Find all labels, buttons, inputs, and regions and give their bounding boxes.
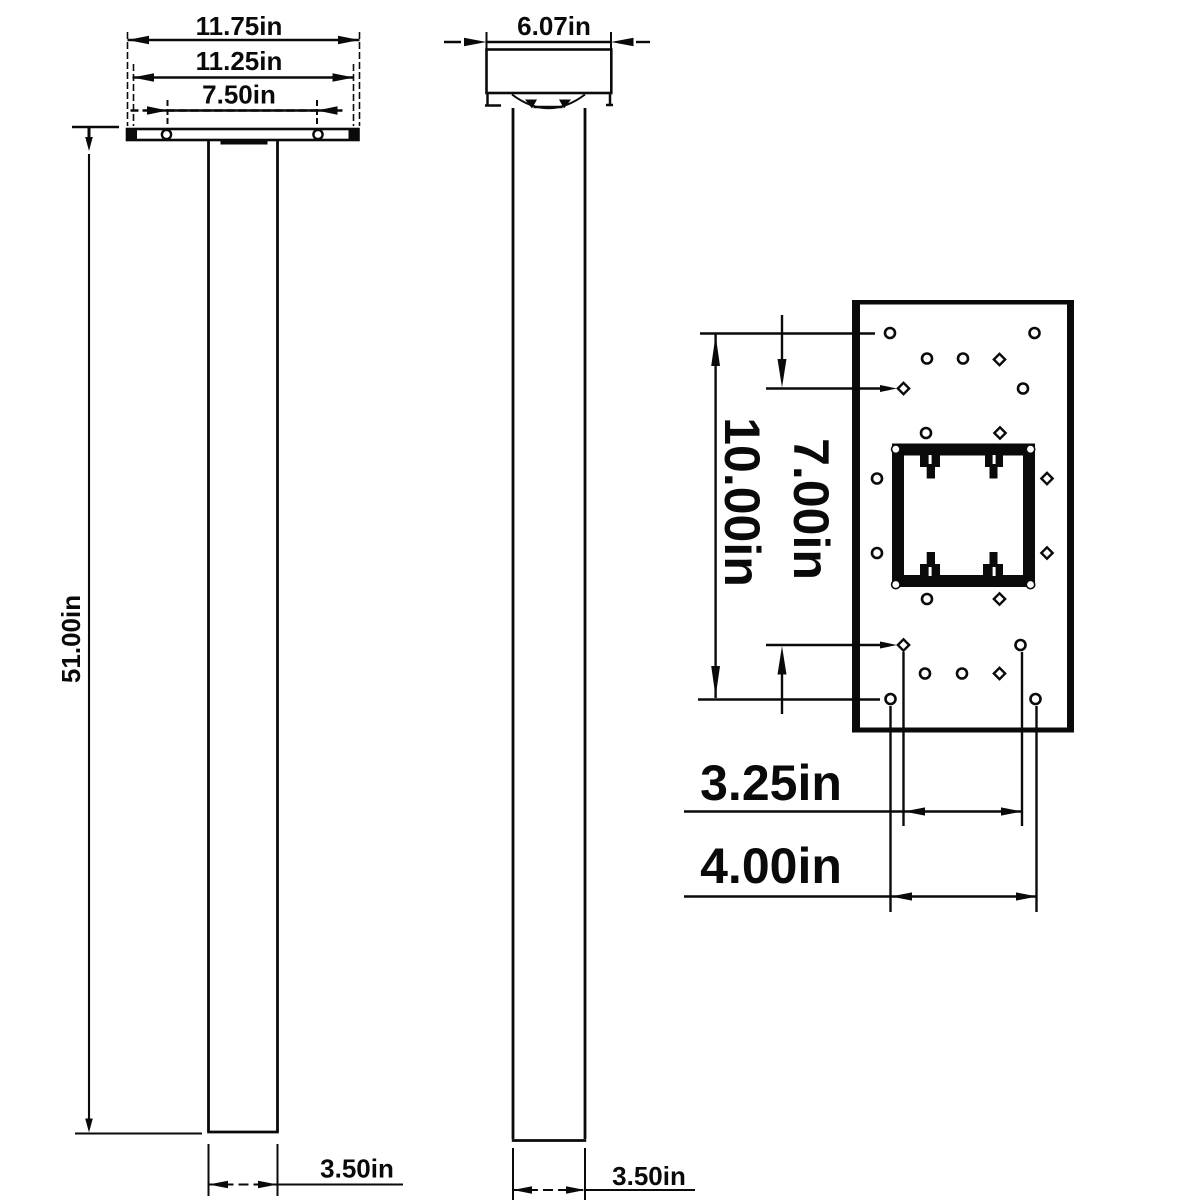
svg-text:3.50in: 3.50in <box>612 1161 686 1191</box>
svg-text:3.50in: 3.50in <box>320 1154 394 1184</box>
svg-text:3.25in: 3.25in <box>700 755 842 811</box>
svg-text:51.00in: 51.00in <box>56 595 86 683</box>
svg-text:7.50in: 7.50in <box>202 80 276 110</box>
svg-text:4.00in: 4.00in <box>700 838 842 894</box>
svg-text:10.00in: 10.00in <box>714 417 770 587</box>
svg-text:6.07in: 6.07in <box>517 11 591 41</box>
svg-text:7.00in: 7.00in <box>783 438 839 580</box>
svg-text:11.25in: 11.25in <box>196 46 283 76</box>
svg-text:11.75in: 11.75in <box>196 11 283 41</box>
